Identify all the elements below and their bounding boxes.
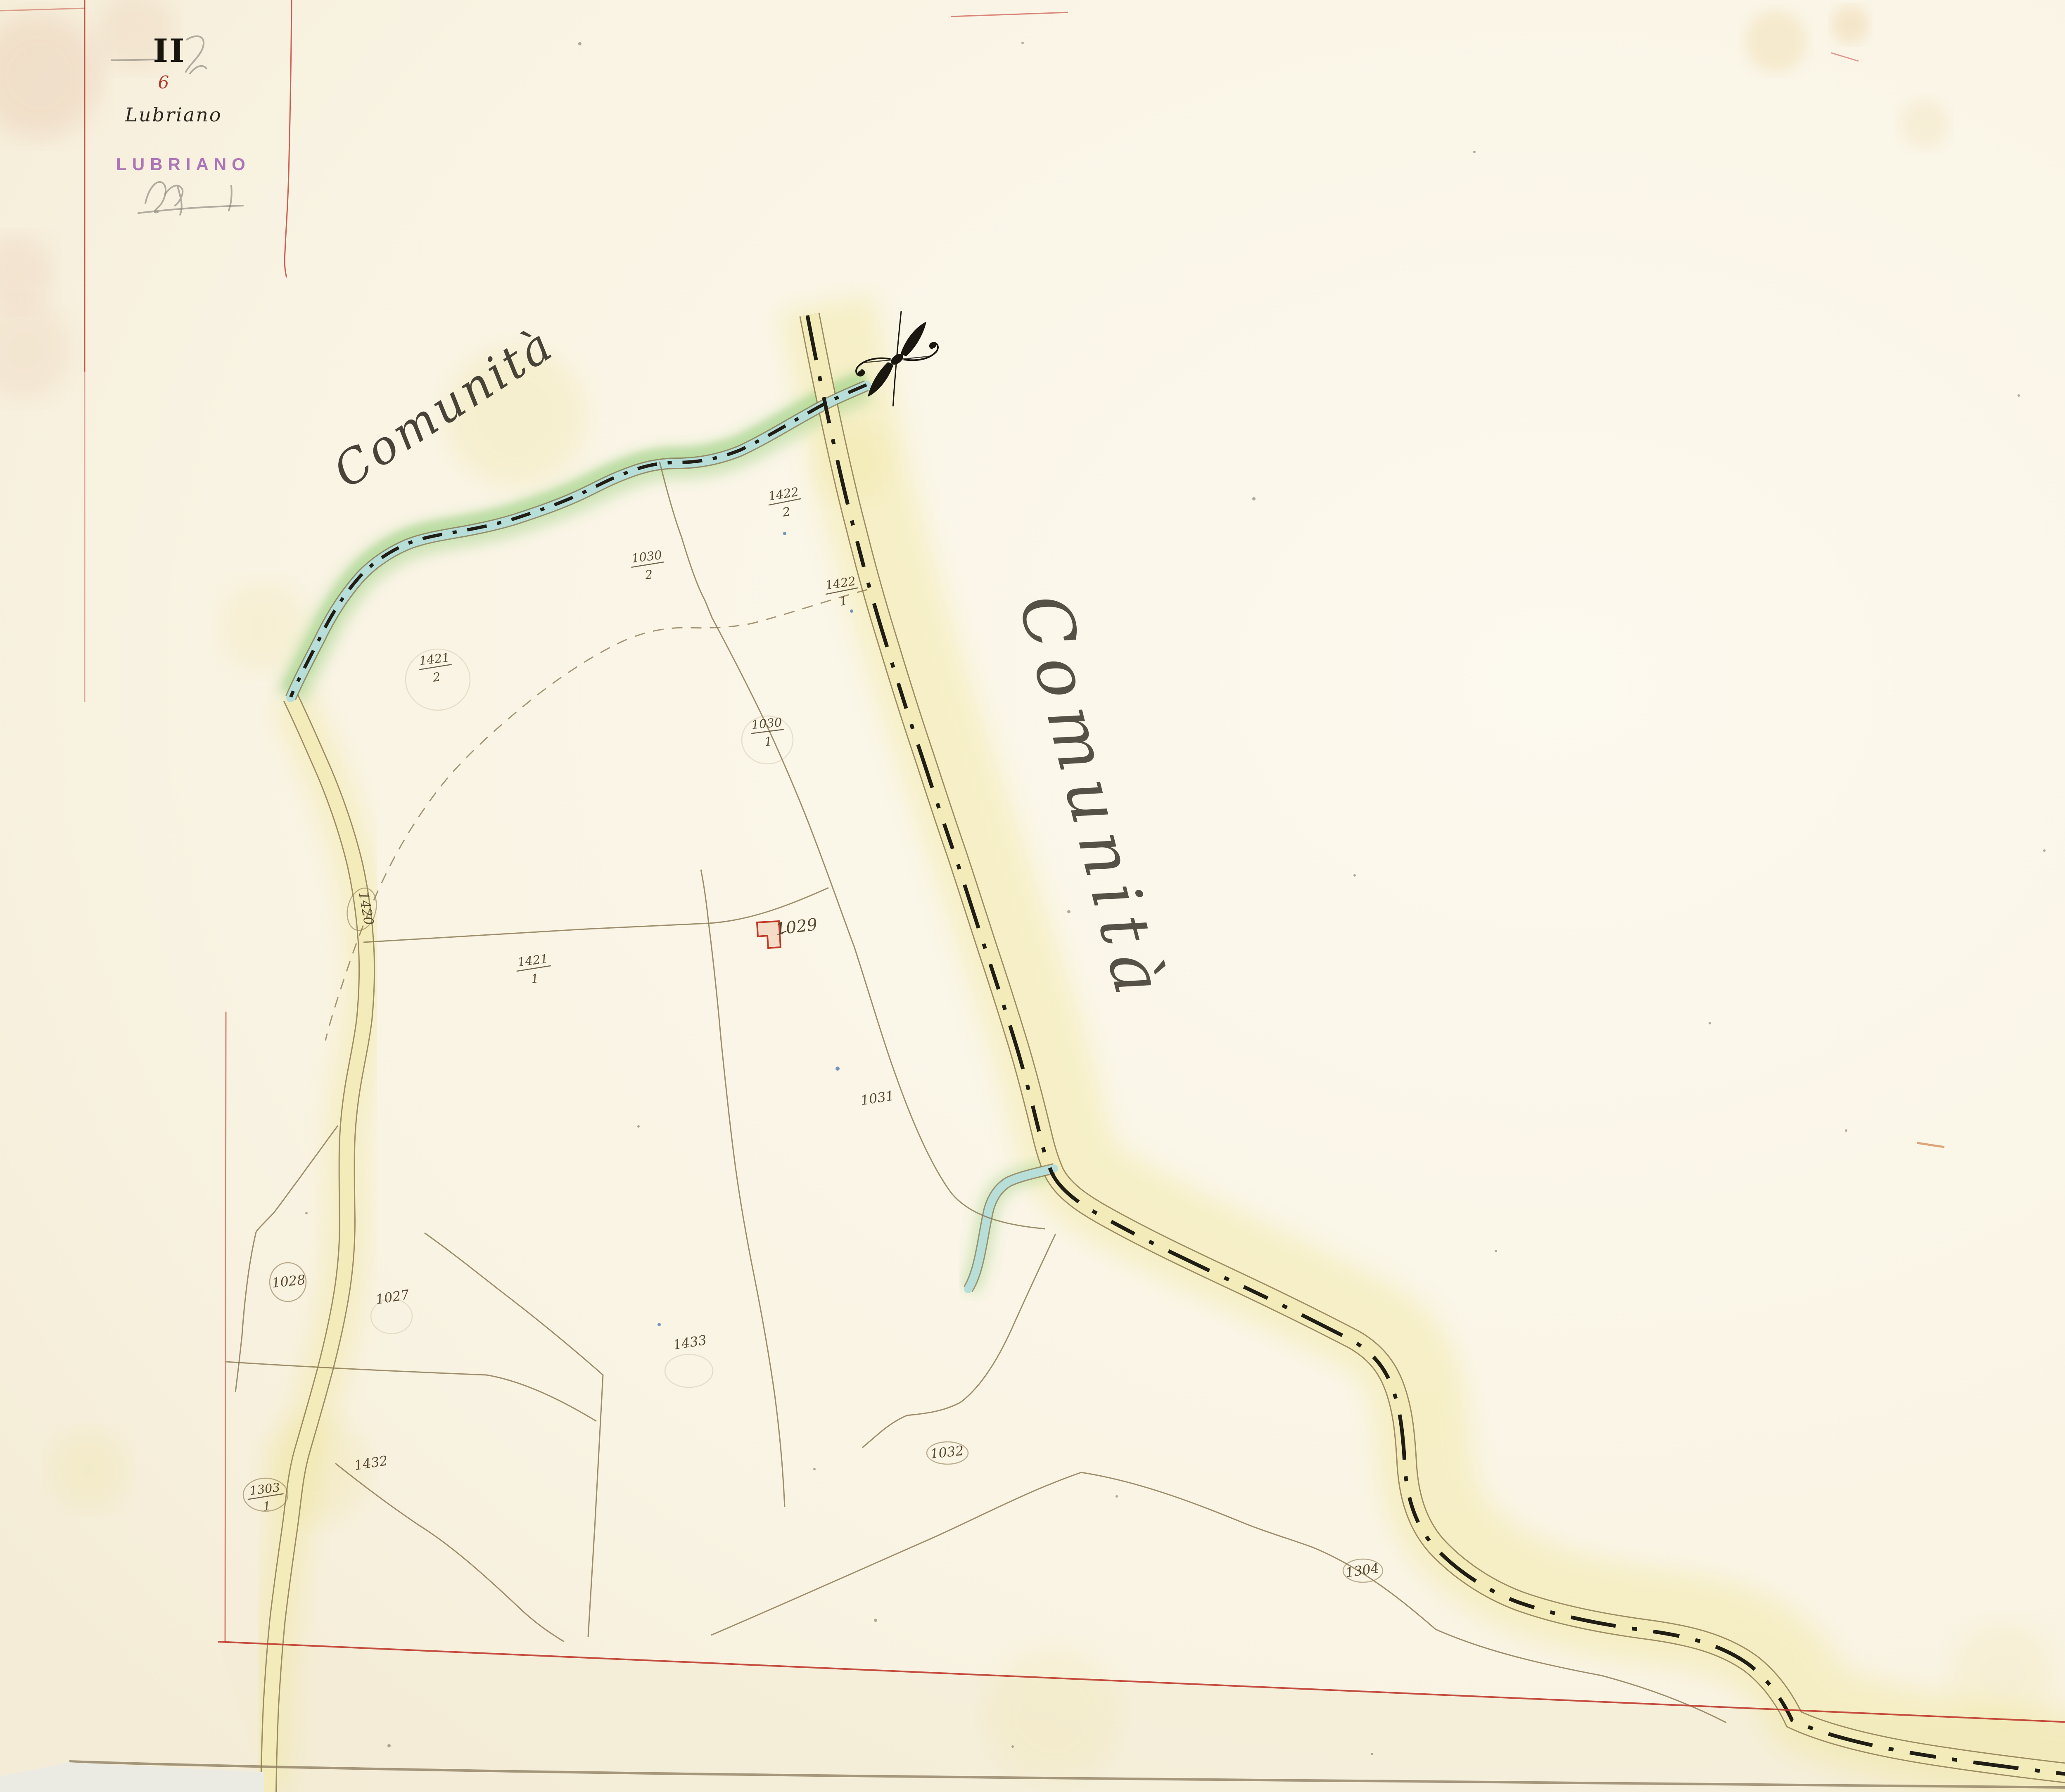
pencil-line bbox=[112, 59, 158, 60]
volume-numeral: II bbox=[153, 32, 186, 70]
map-canvas: 1422 2 1030 2 1422 1 1421 2 1030 1 1421 … bbox=[0, 0, 2065, 1792]
parcel-denominator: 2 bbox=[432, 670, 441, 685]
parcel-denominator: 2 bbox=[644, 567, 653, 582]
map-sheet: 1422 2 1030 2 1422 1 1421 2 1030 1 1421 … bbox=[0, 0, 2065, 1792]
town-name-script: Lubriano bbox=[124, 104, 222, 126]
parcel-denominator: 1 bbox=[764, 734, 773, 749]
town-name-stamp: LUBRIANO bbox=[116, 154, 251, 174]
parcel-number: 1030 bbox=[751, 715, 782, 732]
sheet-number: 6 bbox=[158, 72, 169, 92]
